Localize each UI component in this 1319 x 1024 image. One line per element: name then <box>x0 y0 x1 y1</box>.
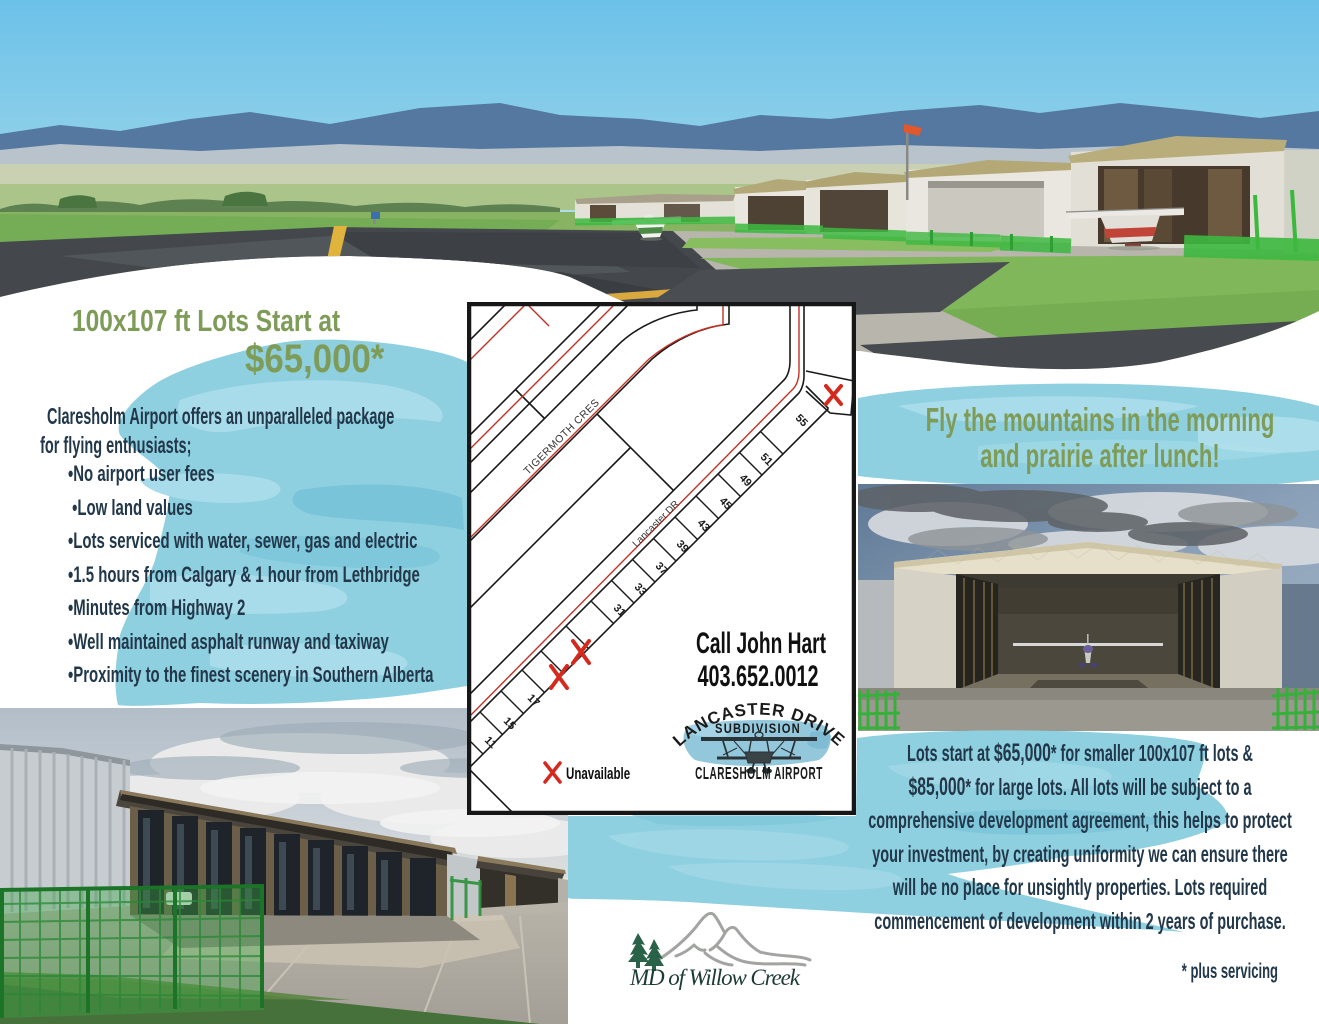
svg-text:Call John Hart: Call John Hart <box>696 627 827 660</box>
svg-text:Unavailable: Unavailable <box>566 765 630 784</box>
svg-text:CLARESHOLM AIRPORT: CLARESHOLM AIRPORT <box>695 764 823 784</box>
svg-text:SUBDIVISION: SUBDIVISION <box>715 721 801 736</box>
svg-text:403.652.0012: 403.652.0012 <box>697 660 818 693</box>
svg-text:MD of Willow Creek: MD of Willow Creek <box>629 965 801 990</box>
